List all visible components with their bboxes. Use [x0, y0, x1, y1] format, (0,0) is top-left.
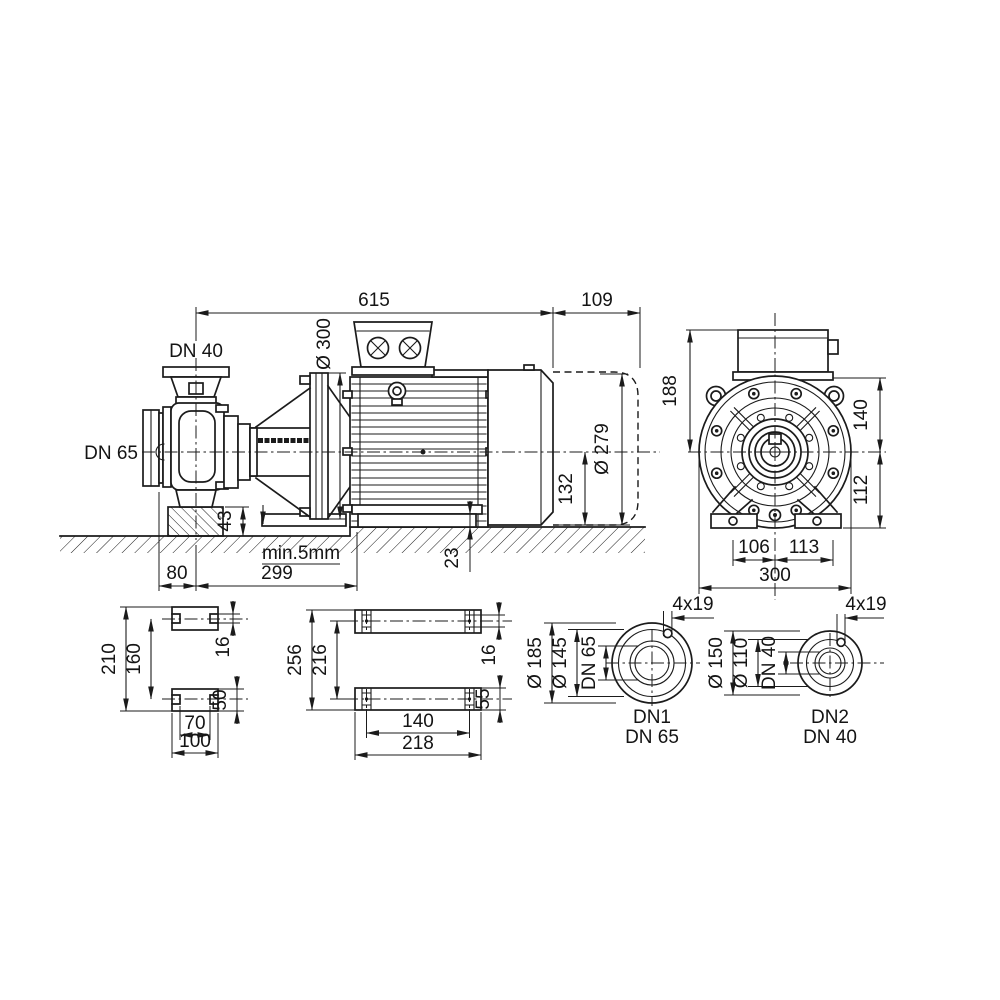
dim-motor-foot-overall-depth: 256	[285, 644, 306, 676]
flange-dn1-caption-line1: DN1	[633, 707, 671, 728]
cable-gland-icon	[828, 340, 838, 354]
dim-dn2-bolt-circle: Ø 110	[731, 638, 752, 688]
dim-pump-support-height: 43	[215, 510, 236, 531]
dim-overall-length: 615	[358, 290, 390, 311]
dim-motor-foot-overall-width: 218	[402, 733, 434, 754]
dim-box-to-centerline: 188	[660, 375, 681, 407]
flange-dn2-caption-line1: DN2	[811, 707, 849, 728]
dim-foot-right: 113	[789, 537, 819, 558]
pump-dimensional-drawing: 615 109 DN 40 DN 65 Ø 300 Ø 279 132 43 2…	[0, 0, 1000, 1000]
end-terminal-box	[733, 330, 838, 380]
label-minimum-gap: min.5mm	[262, 543, 340, 564]
dim-motor-flange-diameter: Ø 300	[314, 318, 335, 370]
dim-motor-foot-depth: 55	[473, 688, 494, 709]
flange-dn2-caption-line2: DN 40	[803, 727, 857, 748]
dim-pump-foot-to-motor-foot: 299	[261, 563, 293, 584]
dim-motor-foot-hole-centers-depth: 216	[310, 644, 331, 676]
dim-dn2-bolt-holes: 4x19	[845, 594, 886, 615]
dim-motor-foot-hole-width: 16	[479, 644, 500, 665]
motor-foot-view: 256 216 16 55 140 218	[285, 602, 512, 760]
dim-dn2-outer-diameter: Ø 150	[706, 637, 727, 689]
bolt-hole	[664, 629, 672, 637]
dim-motor-foot-hole-centers-width: 140	[402, 711, 434, 732]
dim-centerline-to-base: 132	[556, 473, 577, 505]
dim-end-overall-width: 300	[759, 565, 791, 586]
motor-foot-plates	[355, 610, 481, 710]
ground-hatch	[60, 527, 645, 553]
side-view: 615 109 DN 40 DN 65 Ø 300 Ø 279 132 43 2…	[60, 290, 660, 591]
pump-foot-view: 210 160 16 50 70 100	[99, 601, 248, 758]
dim-shaft-height: 112	[851, 475, 872, 505]
terminal-box	[352, 322, 434, 375]
dim-motor-foot-height: 23	[442, 547, 463, 568]
dim-suction-to-pump-foot: 80	[166, 563, 187, 584]
flange-dn2-dimensions: 4x19 Ø 150 Ø 110 DN 40	[706, 594, 887, 695]
fan-cover	[488, 365, 553, 525]
end-view: 188 140 112 106 113 300	[660, 313, 886, 600]
dim-foot-left: 106	[738, 537, 770, 558]
dim-dn1-bolt-circle: Ø 145	[550, 637, 571, 689]
dim-pump-foot-overall-depth: 210	[99, 643, 120, 675]
dim-dn1-bolt-holes: 4x19	[672, 594, 713, 615]
drawing-canvas: 615 109 DN 40 DN 65 Ø 300 Ø 279 132 43 2…	[0, 0, 1000, 1000]
label-suction-flange: DN 65	[84, 443, 138, 464]
dim-pump-foot-slot-centers: 160	[124, 643, 145, 675]
flange-dn1-caption-line2: DN 65	[625, 727, 679, 748]
dim-dn2-bore: DN 40	[759, 636, 780, 690]
bolt-hole	[837, 638, 845, 646]
motor-body	[343, 370, 495, 527]
flange-dn1-view: 4x19 Ø 185 Ø 145 DN 65 DN1 DN 65	[525, 594, 714, 748]
dim-pump-foot-depth: 50	[210, 689, 231, 710]
flange-dn2-view: 4x19 Ø 150 Ø 110 DN 40 DN2 DN 40	[706, 594, 887, 748]
dim-pump-foot-overall-width: 100	[179, 731, 211, 752]
dim-fan-cover-diameter: Ø 279	[592, 423, 613, 475]
dim-dn1-bore: DN 65	[579, 636, 600, 690]
dim-dismantling-clearance: 109	[581, 290, 613, 311]
label-discharge-flange: DN 40	[169, 341, 223, 362]
dim-centerline-to-flange-top: 140	[851, 399, 872, 431]
dim-pump-foot-slot-width: 16	[213, 636, 234, 657]
dim-dn1-outer-diameter: Ø 185	[525, 637, 546, 689]
motor-foot	[352, 505, 482, 514]
